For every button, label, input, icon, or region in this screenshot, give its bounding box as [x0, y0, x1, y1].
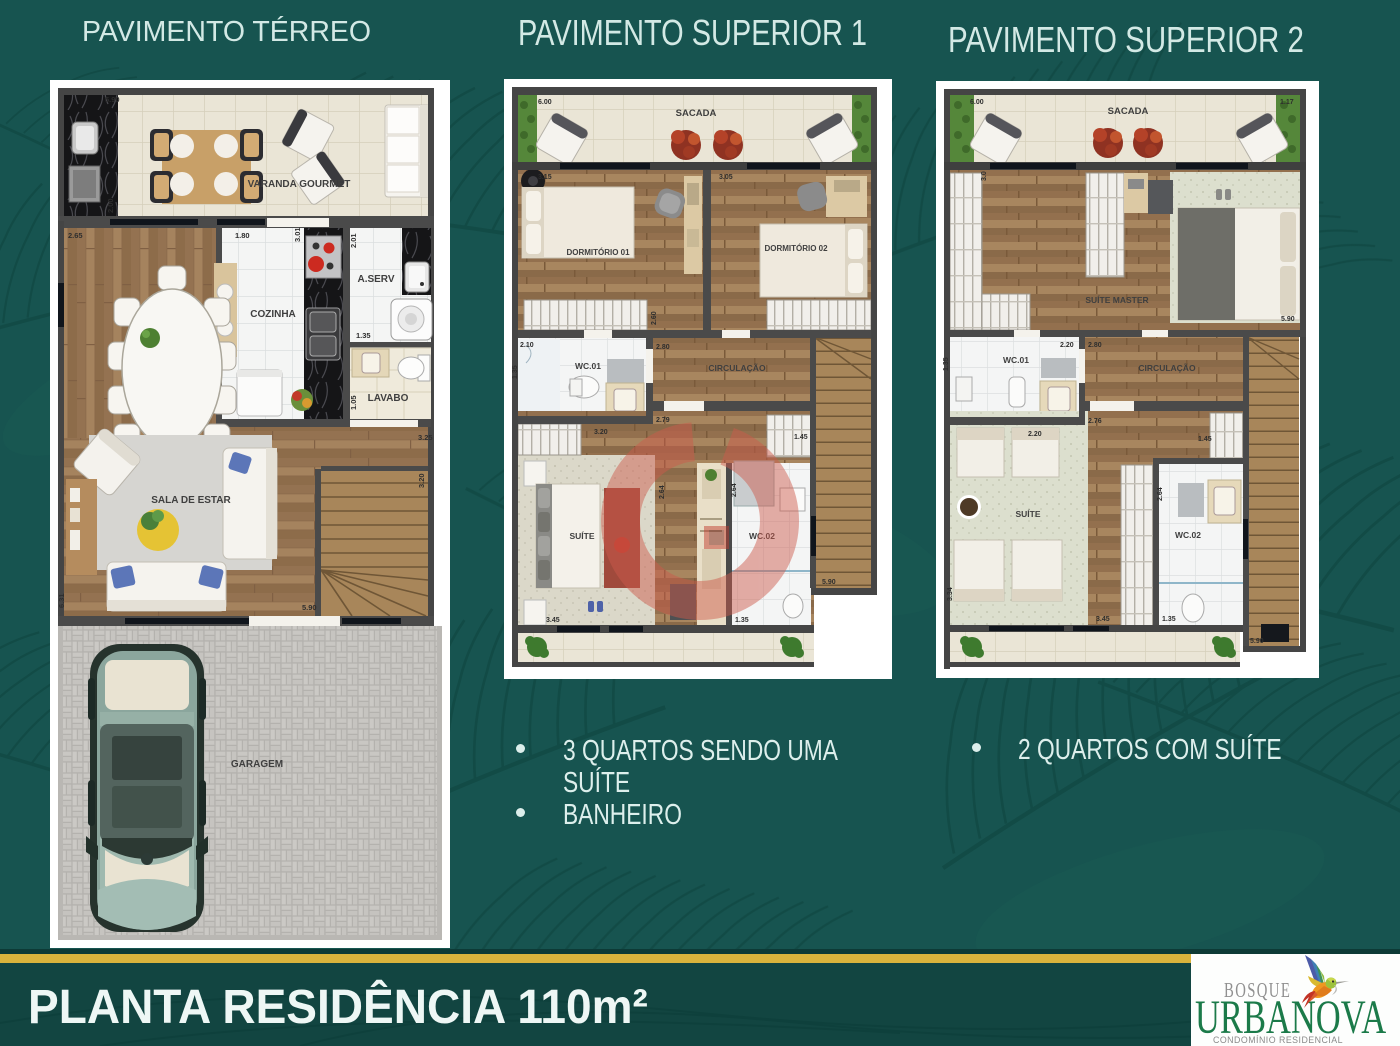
svg-text:5.90: 5.90	[302, 603, 317, 612]
svg-text:6.00: 6.00	[538, 99, 552, 106]
svg-text:2.20: 2.20	[1028, 431, 1042, 438]
svg-text:2.79: 2.79	[656, 417, 670, 424]
svg-text:3.0: 3.0	[981, 171, 988, 181]
svg-text:LAVABO: LAVABO	[368, 393, 409, 404]
svg-text:1.80: 1.80	[235, 231, 250, 240]
svg-text:SUÍTE: SUÍTE	[569, 531, 594, 541]
svg-text:DORMITÓRIO 02: DORMITÓRIO 02	[764, 244, 828, 253]
svg-text:3.25: 3.25	[418, 433, 433, 442]
svg-text:3.34: 3.34	[947, 587, 954, 601]
svg-text:2.64: 2.64	[1157, 487, 1164, 501]
svg-text:3.45: 3.45	[1096, 616, 1110, 623]
svg-text:3.20: 3.20	[594, 429, 608, 436]
svg-text:SACADA: SACADA	[676, 108, 717, 119]
svg-text:DORMITÓRIO 01: DORMITÓRIO 01	[566, 248, 630, 257]
svg-text:CIRCULAÇÃO: CIRCULAÇÃO	[1138, 363, 1196, 373]
svg-text:WC.01: WC.01	[1003, 355, 1029, 365]
svg-text:1.45: 1.45	[1198, 436, 1212, 443]
svg-text:2.00: 2.00	[106, 198, 115, 213]
svg-text:WC.02: WC.02	[1175, 530, 1201, 540]
svg-text:1.35: 1.35	[512, 365, 519, 379]
svg-text:5.90: 5.90	[1281, 316, 1295, 323]
svg-text:5.90: 5.90	[1250, 638, 1264, 645]
svg-text:1.35: 1.35	[735, 617, 749, 624]
svg-text:COZINHA: COZINHA	[250, 309, 296, 320]
svg-text:6.31: 6.31	[57, 593, 66, 608]
svg-text:2.10: 2.10	[520, 342, 534, 349]
svg-text:6.00: 6.00	[970, 99, 984, 106]
svg-text:2.01: 2.01	[349, 233, 358, 248]
svg-text:2.80: 2.80	[656, 344, 670, 351]
svg-text:SUÍTE MASTER: SUÍTE MASTER	[1085, 295, 1148, 305]
svg-text:2.64: 2.64	[731, 483, 738, 497]
svg-text:3.01: 3.01	[293, 227, 302, 242]
svg-text:3.20: 3.20	[417, 473, 426, 488]
svg-text:5.90: 5.90	[822, 579, 836, 586]
svg-text:1.05: 1.05	[349, 395, 358, 410]
svg-text:WC.01: WC.01	[575, 361, 601, 371]
svg-text:1.45: 1.45	[794, 434, 808, 441]
svg-text:2.64: 2.64	[659, 485, 666, 499]
svg-text:VARANDA GOURMET: VARANDA GOURMET	[248, 179, 351, 190]
svg-text:1.35: 1.35	[1162, 616, 1176, 623]
svg-text:1.35: 1.35	[356, 331, 371, 340]
svg-text:1.17: 1.17	[1280, 99, 1294, 106]
svg-text:SUÍTE: SUÍTE	[1015, 509, 1040, 519]
svg-text:A.SERV: A.SERV	[357, 274, 394, 285]
svg-text:3.45: 3.45	[546, 617, 560, 624]
svg-text:1.35: 1.35	[943, 357, 950, 371]
svg-text:5.90: 5.90	[105, 95, 120, 104]
svg-text:2.76: 2.76	[1088, 418, 1102, 425]
svg-text:2.65: 2.65	[68, 231, 83, 240]
svg-text:GARAGEM: GARAGEM	[231, 759, 283, 770]
svg-text:3.05: 3.05	[719, 174, 733, 181]
svg-text:2.80: 2.80	[1088, 342, 1102, 349]
svg-text:2.60: 2.60	[651, 311, 658, 325]
svg-text:CIRCULAÇÃO: CIRCULAÇÃO	[708, 363, 766, 373]
svg-text:3.15: 3.15	[538, 174, 552, 181]
svg-text:2.20: 2.20	[1060, 342, 1074, 349]
svg-text:SALA DE ESTAR: SALA DE ESTAR	[151, 495, 231, 506]
svg-text:SACADA: SACADA	[1108, 106, 1149, 117]
